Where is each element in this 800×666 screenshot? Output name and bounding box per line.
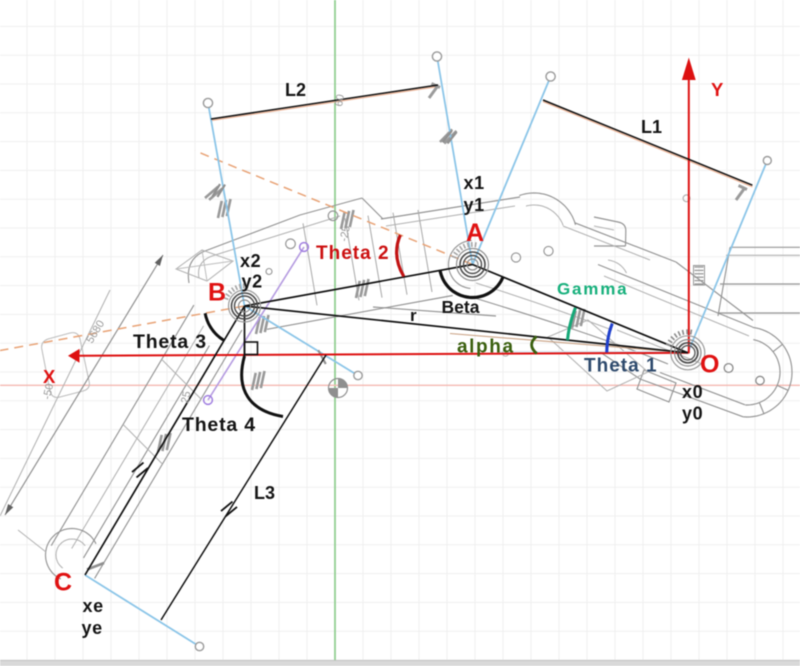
svg-text:Beta: Beta	[442, 297, 480, 317]
svg-text:ye: ye	[82, 618, 103, 638]
svg-text:r: r	[410, 306, 417, 325]
svg-text:-25: -25	[338, 225, 353, 243]
svg-text:x2: x2	[240, 251, 261, 271]
svg-text:y1: y1	[464, 195, 485, 215]
svg-text:Theta 2: Theta 2	[316, 243, 390, 264]
svg-text:A: A	[466, 219, 484, 247]
svg-text:y0: y0	[682, 404, 703, 424]
svg-text:Y: Y	[711, 79, 724, 100]
svg-text:B: B	[208, 279, 226, 307]
svg-text:xe: xe	[83, 596, 104, 616]
svg-text:x1: x1	[464, 173, 485, 193]
svg-text:Gamma: Gamma	[557, 280, 628, 299]
svg-text:Theta 1: Theta 1	[584, 356, 658, 377]
svg-text:C: C	[54, 569, 72, 597]
svg-text:O: O	[700, 351, 719, 379]
svg-text:25: 25	[179, 390, 193, 404]
svg-text:L3: L3	[254, 483, 275, 503]
svg-text:Theta 3: Theta 3	[133, 331, 207, 353]
svg-text:Theta 4: Theta 4	[182, 414, 256, 436]
svg-text:y2: y2	[242, 272, 263, 292]
svg-text:-50: -50	[41, 383, 56, 401]
svg-text:alpha: alpha	[457, 337, 515, 358]
svg-text:L2: L2	[285, 80, 306, 100]
svg-text:L1: L1	[641, 117, 662, 137]
svg-text:x0: x0	[682, 382, 703, 402]
svg-text:60: 60	[333, 93, 347, 107]
